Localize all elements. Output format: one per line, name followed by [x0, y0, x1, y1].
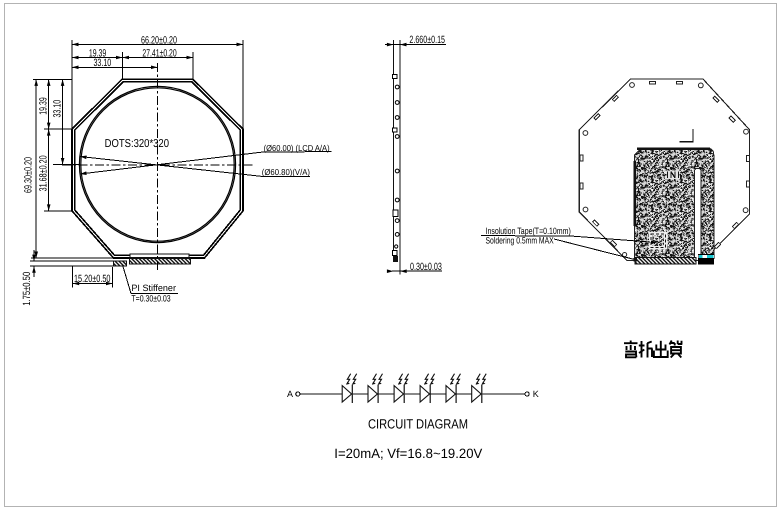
svg-text:PI Stiffener: PI Stiffener [131, 283, 176, 293]
svg-text:2.660±0.15: 2.660±0.15 [409, 34, 445, 46]
svg-text:DOTS:320*320: DOTS:320*320 [105, 138, 169, 150]
svg-text:CIRCUIT DIAGRAM: CIRCUIT DIAGRAM [368, 417, 468, 432]
svg-text:19.39: 19.39 [38, 97, 50, 115]
svg-text:33.10: 33.10 [94, 57, 112, 69]
svg-text:K: K [533, 389, 539, 399]
svg-text:A: A [287, 389, 293, 399]
svg-text:I=20mA; Vf=16.8~19.20V: I=20mA; Vf=16.8~19.20V [334, 446, 482, 461]
svg-text:31.68±0.20: 31.68±0.20 [38, 155, 50, 191]
svg-text:33.10: 33.10 [52, 100, 64, 118]
svg-text:(Ø60.80)(V/A): (Ø60.80)(V/A) [262, 167, 310, 177]
svg-text:Insolution Tape(T=0.10mm): Insolution Tape(T=0.10mm) [486, 226, 571, 236]
svg-text:(Ø60.00) (LCD A/A): (Ø60.00) (LCD A/A) [264, 143, 330, 153]
svg-text:T=0.30±0.03: T=0.30±0.03 [131, 294, 170, 304]
svg-text:15.20±0.50: 15.20±0.50 [74, 273, 111, 285]
svg-text:Soldering 0.5mm MAX: Soldering 0.5mm MAX [486, 236, 554, 246]
svg-text:66.20±0.20: 66.20±0.20 [141, 34, 177, 46]
svg-text:0.30±0.03: 0.30±0.03 [410, 261, 442, 273]
svg-text:69.30±0.20: 69.30±0.20 [23, 157, 35, 193]
svg-text:1.75±0.50: 1.75±0.50 [21, 272, 33, 306]
svg-text:27.41±0.20: 27.41±0.20 [142, 47, 176, 59]
